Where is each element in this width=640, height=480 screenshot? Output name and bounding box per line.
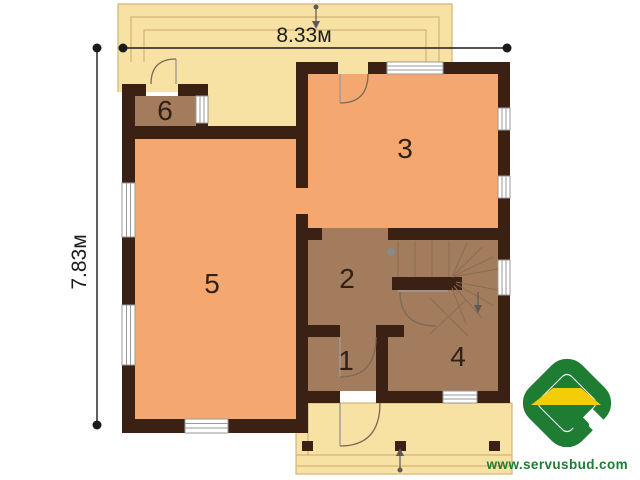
window-symbol-room6 — [196, 96, 208, 123]
wall-stair-lower — [392, 277, 462, 290]
room-label-6: 6 — [157, 95, 173, 126]
room-label-2: 2 — [339, 263, 355, 294]
wall-center-vertical-upper — [296, 62, 308, 188]
window-symbol-right-stair — [498, 260, 510, 295]
dim-dot — [93, 44, 102, 53]
entry-arrow-bottom-dot — [398, 468, 403, 473]
window-symbol-top — [387, 62, 443, 74]
wall-top-seg-2 — [368, 62, 387, 74]
dim-dot — [93, 421, 102, 430]
window-symbol-left-upper — [122, 183, 135, 237]
wall-bottom-seg-3 — [477, 391, 510, 403]
porch-post-right — [489, 441, 500, 451]
room-label-3: 3 — [397, 133, 413, 164]
wall-opening-5-3 — [296, 188, 308, 214]
room-label-5: 5 — [204, 268, 220, 299]
window-symbol-left-lower — [122, 305, 135, 365]
dim-dot — [119, 44, 128, 53]
room-label-4: 4 — [450, 341, 466, 372]
wall-room1-top-left — [296, 325, 340, 337]
dimension-height-label: 7.83м — [68, 234, 91, 289]
window-symbol-bottom-room4 — [443, 391, 477, 403]
window-symbol-room5-bottom — [185, 419, 228, 433]
dimension-width-label: 8.33м — [276, 24, 331, 47]
wall-hall-top-right — [388, 228, 510, 240]
floor-plan-page: 8.33м 7.83м 1 2 3 4 5 6 www.servusbud.co… — [0, 0, 640, 480]
website-url[interactable]: www.servusbud.com — [486, 457, 628, 472]
room-label-1: 1 — [338, 345, 354, 376]
dim-dot — [503, 44, 512, 53]
floor-plan-canvas: 8.33м 7.83м 1 2 3 4 5 6 www.servusbud.co… — [0, 0, 640, 480]
wall-hall-top-left — [296, 228, 322, 240]
servusbud-logo[interactable] — [525, 361, 618, 454]
window-symbol-right-middle — [498, 176, 510, 198]
wall-bottom-seg-2 — [376, 391, 443, 403]
porch-post-left — [302, 441, 313, 451]
wall-room6-recess-bottom — [122, 126, 308, 139]
window-symbol-right-upper — [498, 108, 510, 130]
stair-newel-dot — [387, 248, 395, 256]
wall-bottom-seg-1 — [296, 391, 340, 403]
entry-arrow-top-dot — [314, 5, 319, 10]
bottom-porch — [296, 403, 512, 474]
